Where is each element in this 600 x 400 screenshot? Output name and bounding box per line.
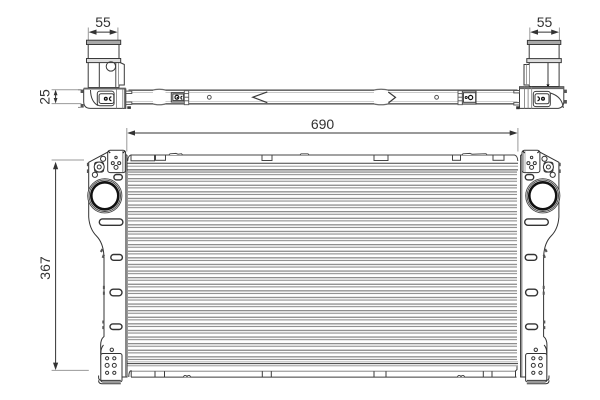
svg-text:55: 55 — [95, 14, 111, 30]
svg-text:25: 25 — [36, 89, 52, 105]
svg-text:55: 55 — [537, 14, 553, 30]
svg-text:690: 690 — [311, 116, 335, 132]
svg-text:367: 367 — [37, 256, 53, 280]
